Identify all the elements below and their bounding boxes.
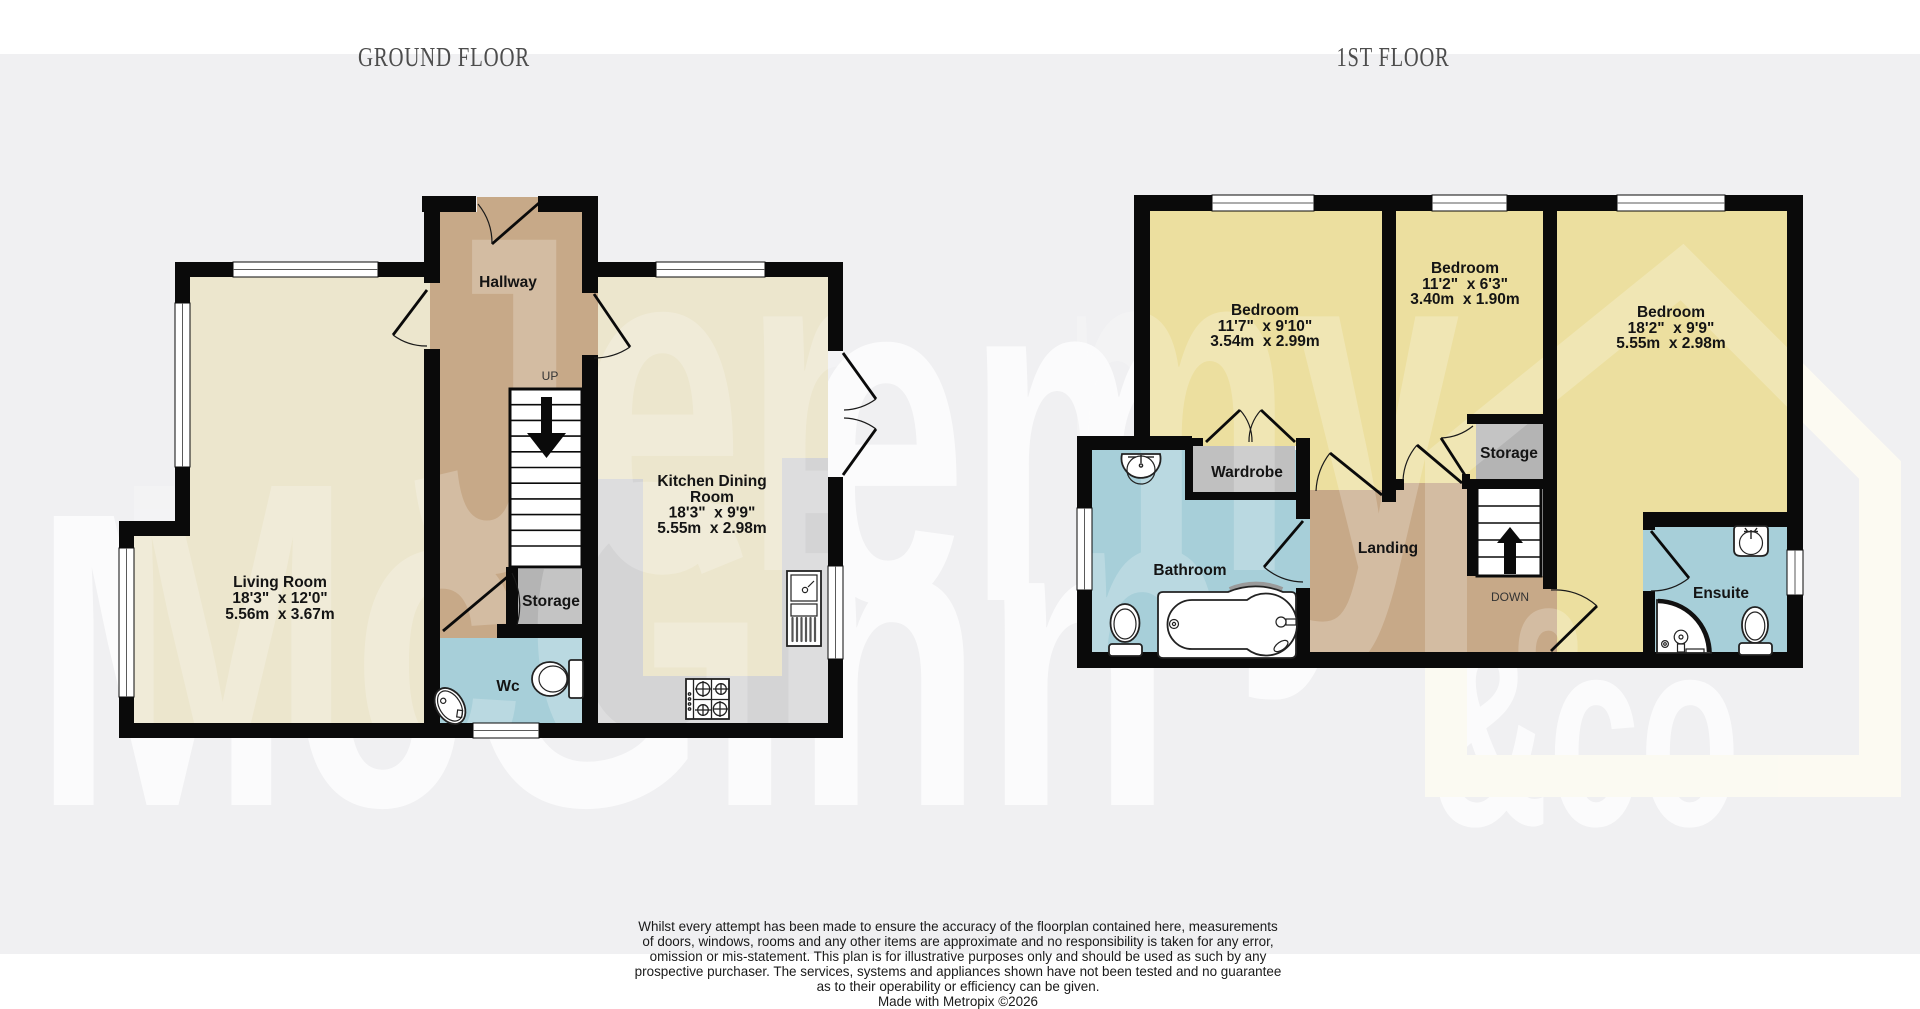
- svg-text:GROUND FLOOR: GROUND FLOOR: [358, 42, 530, 72]
- svg-text:omission or mis-statement. Thi: omission or mis-statement. This plan is …: [650, 949, 1267, 964]
- svg-text:Storage: Storage: [1480, 445, 1538, 462]
- svg-text:18'3" x 12'0": 18'3" x 12'0": [232, 590, 327, 607]
- svg-text:Living Room: Living Room: [233, 574, 327, 591]
- svg-text:UP: UP: [542, 369, 559, 383]
- svg-text:Bathroom: Bathroom: [1153, 562, 1226, 579]
- svg-text:Whilst every attempt has been: Whilst every attempt has been made to en…: [638, 919, 1278, 934]
- svg-text:3.54m x 2.99m: 3.54m x 2.99m: [1210, 333, 1319, 350]
- svg-text:Hallway: Hallway: [479, 274, 537, 291]
- svg-text:5.56m x 3.67m: 5.56m x 3.67m: [225, 606, 334, 623]
- svg-text:Ensuite: Ensuite: [1693, 585, 1749, 602]
- svg-text:DOWN: DOWN: [1491, 590, 1529, 604]
- svg-text:as to their operability or eff: as to their operability or efficiency ca…: [817, 979, 1100, 994]
- svg-text:prospective purchaser. The ser: prospective purchaser. The services, sys…: [635, 964, 1282, 979]
- svg-text:Landing: Landing: [1358, 540, 1418, 557]
- svg-text:Bedroom: Bedroom: [1231, 302, 1299, 319]
- svg-text:18'3" x 9'9": 18'3" x 9'9": [669, 505, 756, 522]
- svg-text:Wardrobe: Wardrobe: [1211, 464, 1283, 481]
- svg-text:Made with Metropix ©2026: Made with Metropix ©2026: [878, 994, 1038, 1009]
- svg-text:Bedroom: Bedroom: [1637, 304, 1705, 321]
- svg-text:Room: Room: [690, 489, 734, 506]
- svg-text:1ST FLOOR: 1ST FLOOR: [1337, 42, 1450, 72]
- svg-text:Wc: Wc: [496, 678, 520, 695]
- svg-text:Bedroom: Bedroom: [1431, 260, 1499, 277]
- svg-text:Storage: Storage: [522, 593, 580, 610]
- svg-text:of doors, windows, rooms and a: of doors, windows, rooms and any other i…: [642, 934, 1273, 949]
- svg-text:5.55m x 2.98m: 5.55m x 2.98m: [1616, 335, 1725, 352]
- svg-text:5.55m x 2.98m: 5.55m x 2.98m: [657, 520, 766, 537]
- svg-text:Kitchen Dining: Kitchen Dining: [657, 473, 766, 490]
- svg-text:3.40m x 1.90m: 3.40m x 1.90m: [1410, 291, 1519, 308]
